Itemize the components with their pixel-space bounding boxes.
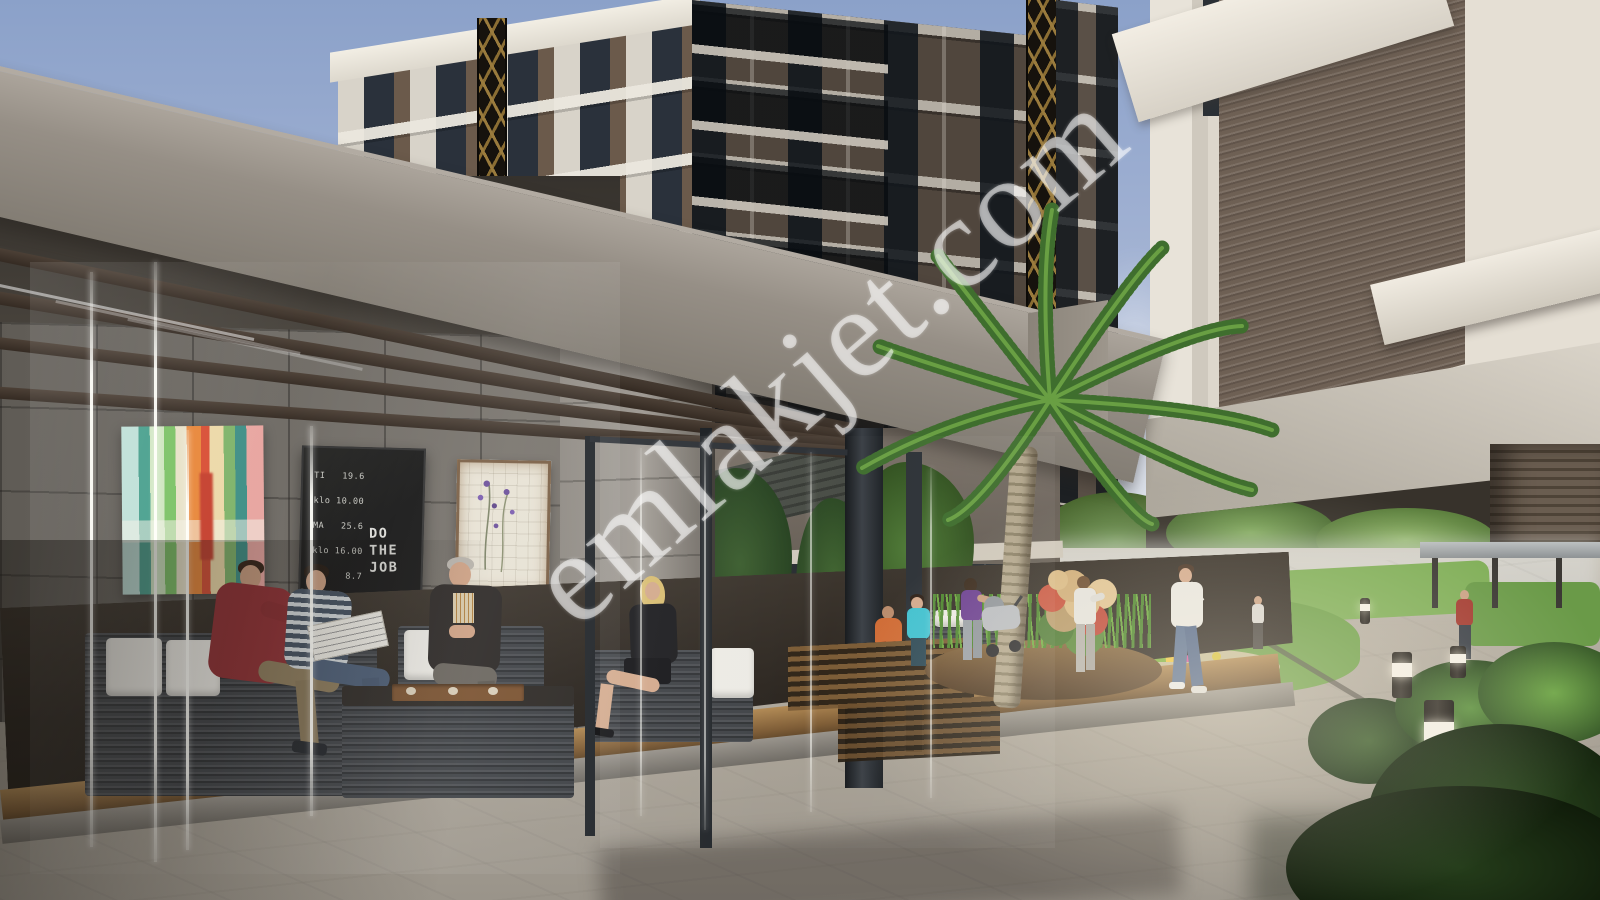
painting-band <box>122 519 264 542</box>
bollard-light <box>1360 598 1370 624</box>
bollard-lamp <box>1360 604 1370 611</box>
schedule-line: TI 19.6 <box>314 470 365 484</box>
armchair-cushion <box>710 648 754 698</box>
glass-edge <box>186 430 189 850</box>
person-torso <box>1074 588 1096 625</box>
headline-line: THE <box>369 542 398 559</box>
tray-cup <box>448 687 458 695</box>
person-torso <box>1252 604 1264 624</box>
glass-edge <box>640 448 642 816</box>
person-leg <box>1076 624 1085 672</box>
glass-edge <box>90 272 93 847</box>
wood-slat-bench <box>838 696 1000 762</box>
person-walking-white-tee <box>1158 560 1218 710</box>
bollard-lamp <box>1392 663 1412 677</box>
tray-cup <box>488 687 498 695</box>
schedule-line: klo 16.00 <box>312 545 363 559</box>
person-head <box>645 582 660 600</box>
render-scene: TI 19.6 klo 10.00 MA 25.6 klo 16.00 TI 8… <box>0 0 1600 900</box>
person-torso <box>629 603 678 665</box>
checkered-shirt <box>453 593 474 623</box>
person-leg <box>963 620 972 660</box>
distant-pergola-post <box>1432 558 1438 608</box>
schedule-line: MA 25.6 <box>313 520 364 534</box>
glass-frame-post <box>700 428 712 848</box>
glass-edge <box>930 468 932 798</box>
person-legs <box>1253 623 1263 649</box>
person-leg <box>1184 625 1203 686</box>
person-torso <box>907 608 930 639</box>
person-shoe <box>1169 682 1185 689</box>
distant-pergola-roof <box>1420 542 1600 558</box>
stroller-body <box>981 604 1021 632</box>
stroller-wheel <box>1009 640 1021 652</box>
distant-pergola-post <box>1492 558 1498 608</box>
person-leg <box>595 683 614 730</box>
palm-fronds <box>820 168 1300 548</box>
bollard-lamp <box>1450 654 1466 663</box>
headline-line: DO <box>369 525 398 542</box>
glass-edge <box>310 426 313 816</box>
glass-edge <box>154 262 157 862</box>
person-torso <box>1456 599 1473 626</box>
serving-tray <box>392 684 524 701</box>
person-leg <box>973 620 982 658</box>
person-white-top-standing <box>1064 576 1106 691</box>
schedule-line: klo 10.00 <box>313 495 364 509</box>
bollard-light <box>1450 646 1466 678</box>
distant-pergola-post <box>1556 558 1562 608</box>
bollard-light <box>1392 652 1412 698</box>
person-blonde-woman <box>592 568 712 738</box>
lawn <box>1465 582 1600 646</box>
glass-edge <box>704 438 706 830</box>
person-head <box>449 562 471 587</box>
person-head <box>1179 568 1192 583</box>
person-distant-woman <box>1248 596 1268 651</box>
person-legs <box>911 638 926 666</box>
person-torso <box>1171 582 1203 628</box>
painting-streak <box>200 473 214 560</box>
stroller-wheel <box>986 644 999 657</box>
glass-frame-post <box>585 436 595 836</box>
person-leg <box>1086 624 1095 670</box>
glass-edge <box>810 452 812 812</box>
person-shoe <box>1191 686 1207 693</box>
person-hands <box>449 625 475 638</box>
baby-stroller <box>982 596 1030 662</box>
tray-cup <box>406 687 416 695</box>
